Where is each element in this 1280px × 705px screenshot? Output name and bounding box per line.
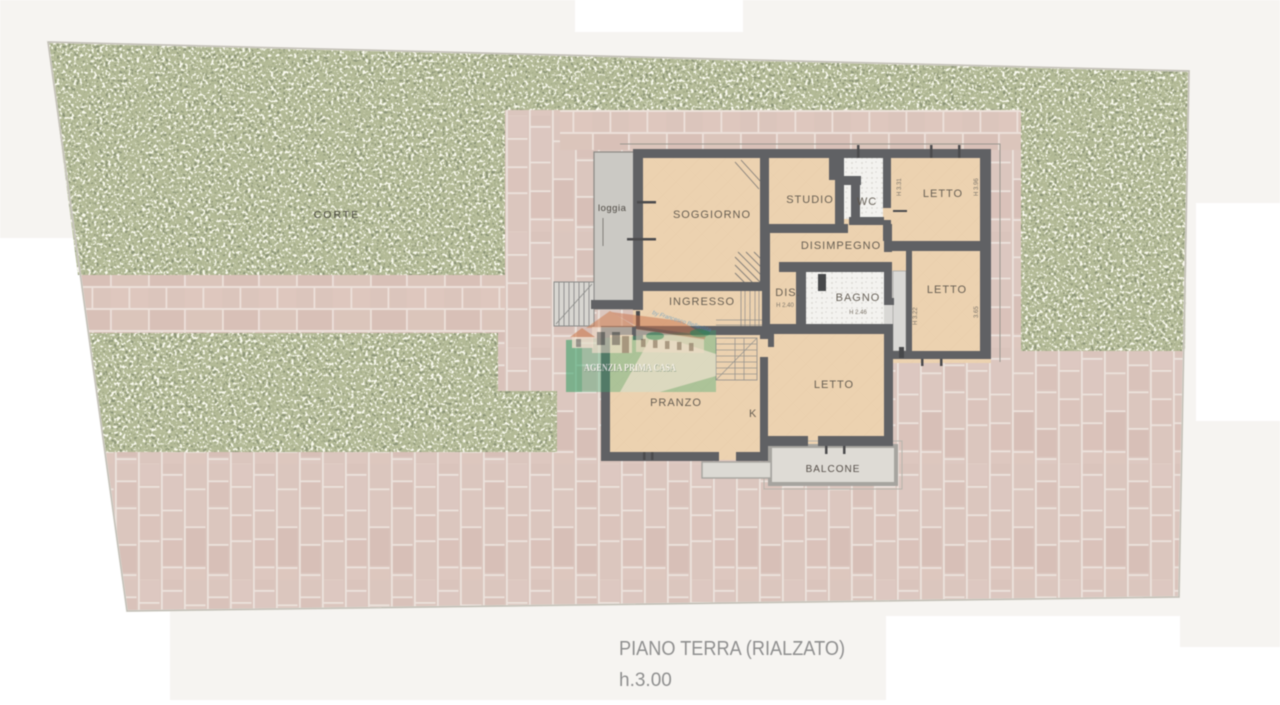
svg-text:H 2.40: H 2.40 [776, 303, 794, 309]
svg-text:DISIMPEGNO: DISIMPEGNO [801, 240, 881, 252]
svg-text:H 3.31: H 3.31 [897, 178, 903, 196]
svg-text:PIANO TERRA (RIALZATO): PIANO TERRA (RIALZATO) [619, 638, 845, 660]
svg-text:INGRESSO: INGRESSO [669, 296, 735, 308]
svg-text:H 3.96: H 3.96 [974, 178, 980, 196]
svg-text:h.3.00: h.3.00 [619, 670, 672, 691]
svg-text:LETTO: LETTO [814, 379, 854, 391]
svg-text:CORTE: CORTE [314, 209, 361, 221]
svg-text:H 3.22: H 3.22 [913, 307, 919, 325]
svg-text:loggia: loggia [598, 203, 627, 214]
svg-text:3.65: 3.65 [974, 306, 980, 318]
svg-text:BALCONE: BALCONE [806, 464, 861, 475]
svg-text:PRANZO: PRANZO [650, 397, 702, 409]
svg-text:WC: WC [857, 196, 877, 208]
svg-text:LETTO: LETTO [923, 188, 963, 200]
svg-text:SOGGIORNO: SOGGIORNO [673, 209, 751, 221]
svg-text:AGENZIA PRIMA CASA: AGENZIA PRIMA CASA [584, 363, 677, 374]
svg-text:K: K [749, 408, 757, 420]
svg-text:DIS.: DIS. [775, 287, 800, 299]
svg-text:BAGNO: BAGNO [836, 292, 881, 304]
svg-text:STUDIO: STUDIO [786, 194, 834, 206]
svg-text:LETTO: LETTO [927, 284, 967, 296]
svg-text:H 2.46: H 2.46 [849, 310, 867, 316]
